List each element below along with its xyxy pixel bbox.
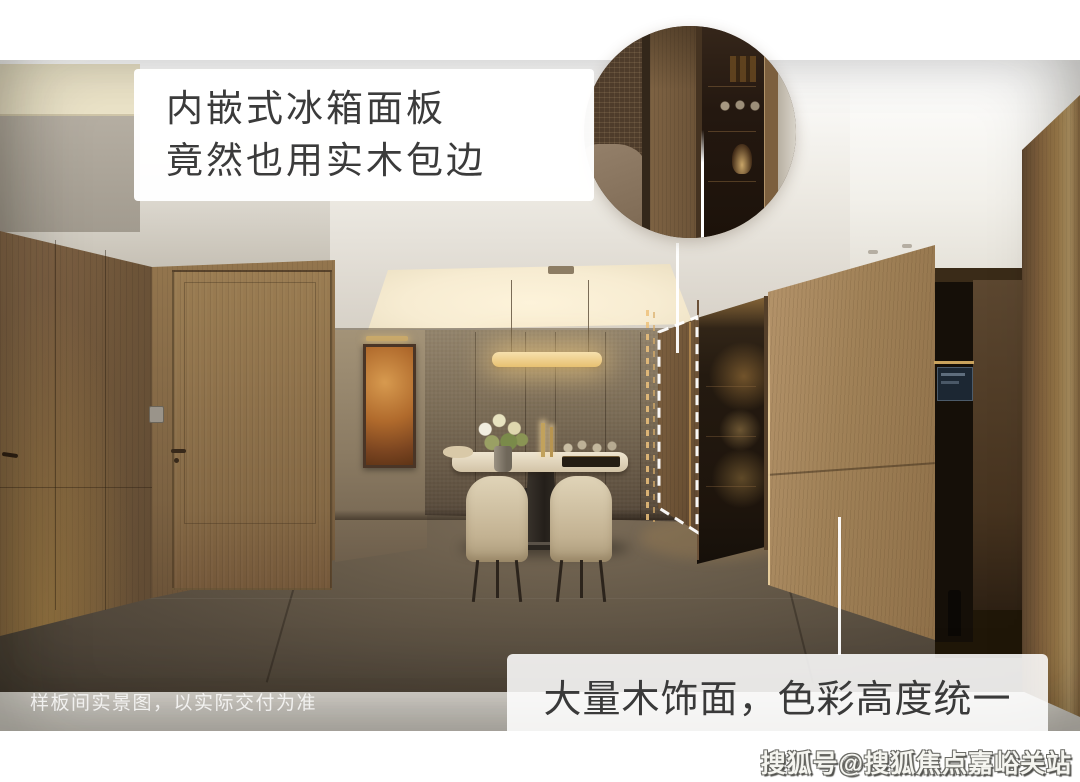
lit-louver-strip bbox=[646, 310, 649, 522]
wood-annotation-box: 大量木饰面，色彩高度统一 bbox=[507, 654, 1048, 737]
pendant-cable bbox=[511, 280, 512, 354]
door-handle bbox=[171, 449, 186, 453]
annotated-interior-screenshot: 内嵌式冰箱面板 竟然也用实木包边 大量木饰面，色彩高度统一 样板间实景图，以实际… bbox=[0, 0, 1080, 782]
door-panel-line bbox=[184, 282, 316, 524]
callout-connector-line-top bbox=[676, 243, 679, 353]
callout-wine-glasses bbox=[718, 98, 764, 122]
cabinet-frame bbox=[697, 300, 699, 560]
zoom-circle-callout bbox=[584, 26, 796, 238]
vase bbox=[494, 446, 512, 472]
callout-wood-edge bbox=[650, 26, 696, 238]
wood-annotation-text: 大量木饰面，色彩高度统一 bbox=[543, 668, 1011, 723]
cabinet-shelf bbox=[706, 386, 756, 387]
panel-seam bbox=[0, 487, 152, 488]
panel-seam bbox=[55, 240, 56, 610]
cabinet-shelf bbox=[706, 436, 756, 437]
ceiling-spotlight bbox=[902, 244, 912, 248]
panel-seam bbox=[640, 332, 641, 518]
door-lock bbox=[174, 458, 179, 463]
fridge-annotation-line2: 竟然也用实木包边 bbox=[166, 140, 594, 183]
callout-shelf bbox=[708, 181, 756, 182]
dining-chair bbox=[550, 476, 612, 562]
fridge-annotation-line1: 内嵌式冰箱面板 bbox=[166, 88, 594, 131]
intercom-screen-line bbox=[941, 381, 959, 384]
corridor-back-wall bbox=[973, 280, 1023, 610]
photo-disclaimer-watermark: 样板间实景图，以实际交付为准 bbox=[30, 688, 317, 715]
intercom-screen-line bbox=[941, 373, 965, 376]
cabinet-edge-highlight bbox=[768, 300, 770, 585]
abstract-artwork bbox=[363, 344, 416, 468]
lit-louver-strip bbox=[653, 312, 655, 522]
sohu-watermark: 搜狐号@搜狐焦点嘉峪关站 bbox=[761, 744, 1072, 780]
callout-glass-edge-highlight bbox=[701, 130, 704, 238]
light-switch bbox=[149, 406, 164, 423]
left-wood-wall bbox=[0, 225, 152, 640]
corridor-column bbox=[935, 282, 973, 642]
chair-leg bbox=[580, 560, 583, 598]
ceiling-vent bbox=[548, 266, 574, 274]
callout-shelf bbox=[708, 131, 756, 132]
glass-display-cabinet bbox=[697, 296, 769, 564]
curved-wood-column bbox=[1022, 95, 1080, 717]
dining-chair bbox=[466, 476, 528, 562]
cornice-band bbox=[0, 64, 140, 116]
fridge-annotation-box: 内嵌式冰箱面板 竟然也用实木包边 bbox=[134, 69, 594, 201]
linear-pendant-light bbox=[492, 352, 602, 367]
wood-veneer-cabinet bbox=[768, 245, 935, 645]
callout-shelf bbox=[708, 86, 756, 87]
corridor-object bbox=[948, 590, 961, 636]
ceiling-spotlight bbox=[868, 250, 878, 254]
glassware bbox=[560, 436, 622, 458]
callout-bottles bbox=[730, 56, 756, 82]
panel-seam bbox=[105, 250, 106, 610]
callout-decanter bbox=[732, 144, 752, 174]
ceiling-cove-light bbox=[368, 262, 693, 330]
picture-light bbox=[366, 336, 408, 341]
chair-leg bbox=[496, 560, 499, 598]
upper-wall-left bbox=[0, 116, 140, 232]
lit-louver-strip bbox=[689, 322, 691, 528]
callout-panel-gap bbox=[642, 26, 650, 238]
candlestick bbox=[550, 427, 553, 457]
callout-cabinet-frame bbox=[764, 26, 779, 238]
bread-basket bbox=[443, 446, 473, 458]
serving-tray bbox=[562, 456, 620, 467]
intercom-light bbox=[934, 361, 974, 364]
callout-ceiling-sliver bbox=[778, 26, 796, 238]
callout-connector-line-bottom bbox=[838, 517, 841, 655]
cabinet-shelf bbox=[706, 486, 756, 487]
pendant-cable bbox=[588, 280, 589, 354]
candlestick bbox=[541, 423, 545, 457]
